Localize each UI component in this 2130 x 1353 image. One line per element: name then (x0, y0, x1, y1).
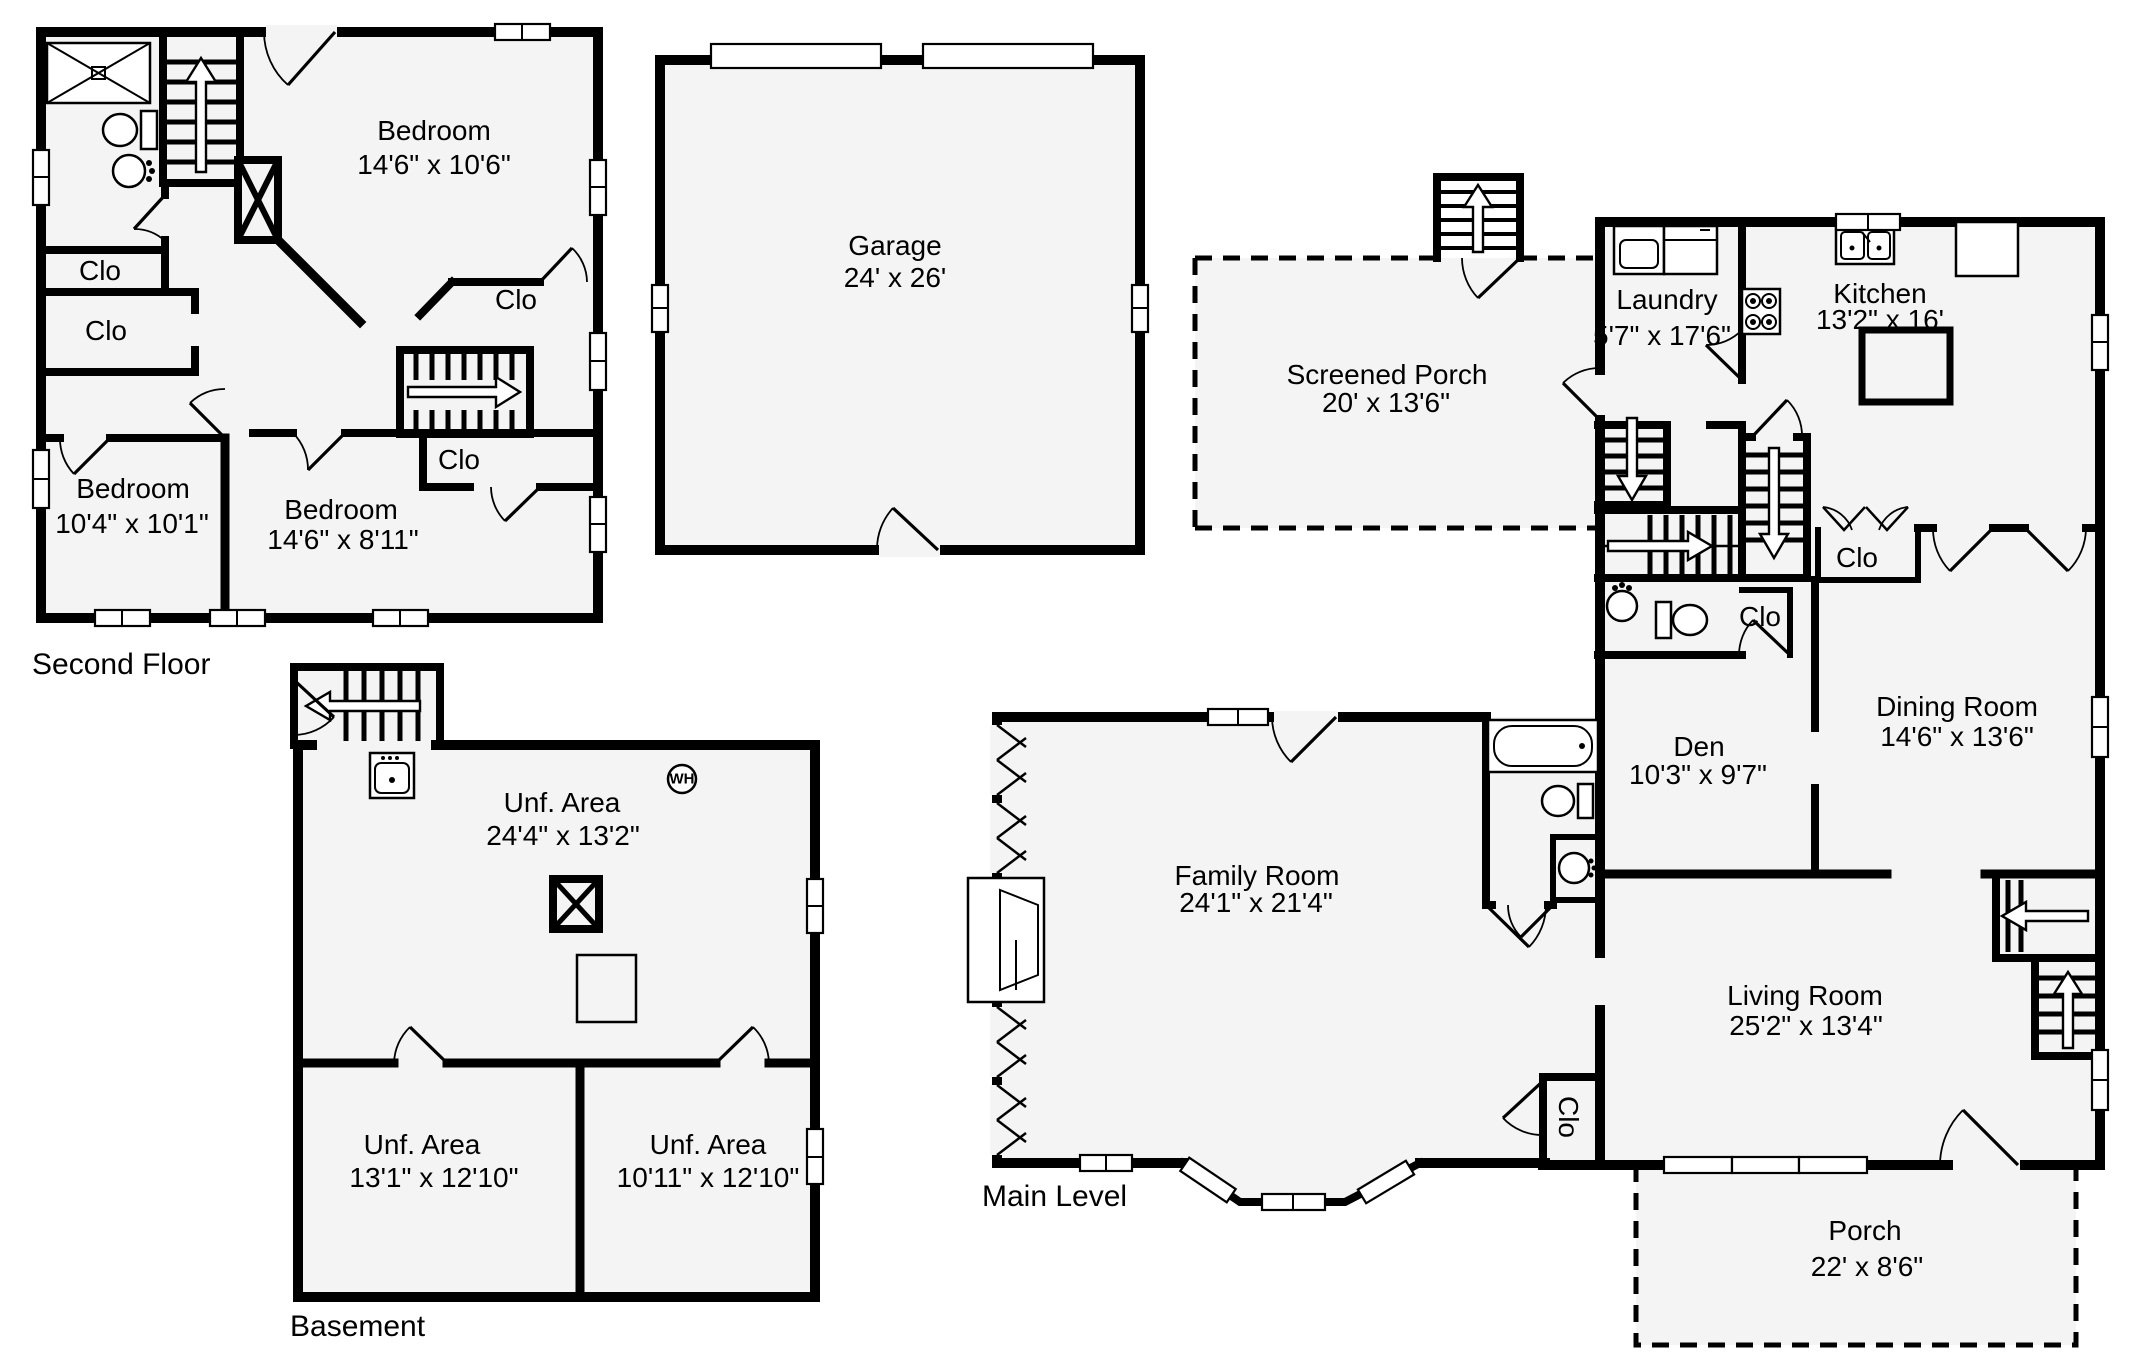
floor-caption-basement: Basement (290, 1310, 425, 1344)
equipment-box (577, 955, 636, 1022)
closet-label: Clo (85, 315, 127, 347)
fireplace-icon (968, 878, 1044, 1002)
room-dims-garage: 24' x 26' (844, 262, 947, 294)
room-dims-unf3: 10'11" x 12'10" (617, 1162, 800, 1194)
room-label-unf1: Unf. Area (504, 787, 621, 819)
powder-toilet-icon (1656, 602, 1707, 638)
room-dims-bedroom1: 14'6" x 10'6" (357, 149, 511, 181)
room-label-garage: Garage (848, 230, 941, 262)
room-label-dining: Dining Room (1876, 691, 2038, 723)
room-dims-porch: 22' x 8'6" (1811, 1251, 1923, 1283)
garage-door (923, 44, 1093, 68)
closet-label: Clo (1836, 542, 1878, 574)
floor-plan-page: Bedroom 14'6" x 10'6" Clo Clo Clo Clo Be… (0, 0, 2130, 1353)
room-dims-bedroom3: 14'6" x 8'11" (267, 524, 418, 556)
closet-label: Clo (1739, 601, 1781, 633)
laundry-sink-icon (1614, 226, 1664, 274)
room-label-laundry: Laundry (1616, 284, 1717, 316)
closet-label: Clo (79, 255, 121, 287)
chimney-icon (238, 160, 278, 240)
washer-icon (1664, 226, 1717, 274)
stove-icon (1742, 289, 1780, 334)
room-dims-laundry: 5'7" x 17'6" (1593, 320, 1731, 352)
floor-caption-second: Second Floor (32, 648, 210, 682)
room-dims-unf2: 13'1" x 12'10" (349, 1162, 518, 1194)
basement-plan (294, 667, 823, 1297)
floor-caption-main: Main Level (982, 1180, 1127, 1214)
water-heater-label: WH (670, 771, 695, 788)
bath-toilet-icon (1542, 784, 1593, 818)
furnace-icon (553, 879, 599, 929)
garage-plan (652, 44, 1148, 557)
closet-label: Clo (1552, 1096, 1584, 1138)
room-dims-family: 24'1" x 21'4" (1179, 887, 1333, 919)
room-dims-screened-porch: 20' x 13'6" (1322, 387, 1450, 419)
room-label-porch: Porch (1828, 1215, 1901, 1247)
toilet-icon (103, 111, 157, 149)
kitchen-island (1862, 330, 1950, 402)
room-label-unf2: Unf. Area (364, 1129, 481, 1161)
room-dims-unf1: 24'4" x 13'2" (486, 820, 640, 852)
room-label-unf3: Unf. Area (650, 1129, 767, 1161)
room-label-bedroom1: Bedroom (377, 115, 491, 147)
shower-icon (47, 43, 150, 103)
room-label-bedroom3: Bedroom (284, 494, 398, 526)
utility-sink-icon (370, 753, 414, 798)
refrigerator-icon (1956, 222, 2018, 276)
bathtub-icon (1488, 720, 1598, 772)
floor-plan-canvas (0, 0, 2130, 1353)
room-dims-dining: 14'6" x 13'6" (1880, 721, 2034, 753)
room-dims-living: 25'2" x 13'4" (1729, 1010, 1883, 1042)
closet-label: Clo (438, 444, 480, 476)
room-dims-bedroom2: 10'4" x 10'1" (55, 508, 209, 540)
room-label-living: Living Room (1727, 980, 1883, 1012)
room-dims-den: 10'3" x 9'7" (1629, 759, 1767, 791)
room-dims-kitchen: 13'2" x 16' (1816, 304, 1944, 336)
garage-door (711, 44, 881, 68)
closet-label: Clo (495, 284, 537, 316)
room-label-bedroom2: Bedroom (76, 473, 190, 505)
kitchen-sink-icon (1836, 226, 1894, 264)
porch-stairs-icon (1437, 177, 1520, 258)
